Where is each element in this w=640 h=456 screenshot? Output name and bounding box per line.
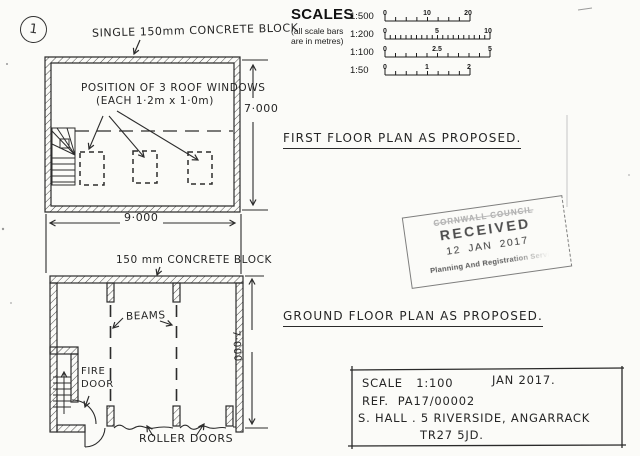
ground-floor-dimension-lines <box>245 276 268 428</box>
roof-window-1 <box>80 152 104 185</box>
first-floor-height-dimension: 7·000 <box>244 103 279 115</box>
title-block-address-line1: S. HALL . 5 RIVERSIDE, ANGARRACK <box>358 412 590 425</box>
scale-50-end: 2 <box>467 64 471 71</box>
beam-pier-top-1 <box>107 283 114 302</box>
scales-note-line2: are in metres) <box>291 36 343 46</box>
scale-500-mid: 10 <box>423 10 431 17</box>
scale-200-start: 0 <box>383 28 387 35</box>
beam-pier-bottom-2 <box>173 406 180 426</box>
first-floor-plan <box>45 40 268 274</box>
title-block-reference: REF. PA17/00002 <box>362 395 475 408</box>
beams-label: BEAMS <box>126 310 166 323</box>
ground-floor-walls <box>50 276 243 432</box>
scale-ratio-50: 1:50 <box>350 65 369 76</box>
fire-door-label-line2: DOOR <box>81 379 114 390</box>
roller-doors-label: ROLLER DOORS <box>139 433 233 445</box>
ground-floor-wall-label: 150 mm CONCRETE BLOCK <box>116 255 272 267</box>
sheet-number: 1 <box>28 21 38 37</box>
scale-50-start: 0 <box>383 64 387 71</box>
scale-ratio-200: 1:200 <box>350 29 374 40</box>
scale-100-mid: 2.5 <box>432 46 442 53</box>
wall-label-leader-arrow <box>134 40 140 54</box>
beam-pier-bottom-3 <box>226 406 233 426</box>
roof-windows-note-line2: (EACH 1·2m x 1·0m) <box>96 96 214 108</box>
scale-500-start: 0 <box>383 10 387 17</box>
scale-ratio-100: 1:100 <box>350 47 374 58</box>
fire-door-label-line1: FIRE <box>81 366 105 377</box>
beam-pier-bottom-1 <box>107 406 114 426</box>
scale-200-end: 10 <box>484 28 492 35</box>
title-block-address-line2: TR27 5JD. <box>420 429 484 442</box>
ground-floor-height-dimension: 7·000 <box>230 330 243 362</box>
scale-ratio-500: 1:500 <box>350 11 374 22</box>
roof-window-2 <box>133 151 157 183</box>
first-floor-stairs <box>52 128 75 185</box>
first-floor-plan-title: FIRST FLOOR PLAN AS PROPOSED. <box>283 132 521 149</box>
first-floor-width-dimension: 9·000 <box>124 212 159 224</box>
ground-floor-plan-title: GROUND FLOOR PLAN AS PROPOSED. <box>283 310 543 327</box>
scale-100-end: 5 <box>488 46 492 53</box>
scales-note-line1: (all scale bars <box>291 26 343 36</box>
scale-200-mid: 5 <box>435 28 439 35</box>
scale-50-mid: 1 <box>425 64 429 71</box>
stair-room-right-wall <box>71 354 78 402</box>
stair-room-top-wall <box>50 347 78 354</box>
roof-window-leader-arrows <box>89 111 198 160</box>
roof-window-3 <box>188 152 212 184</box>
scale-bars <box>385 14 490 75</box>
scales-heading: SCALES <box>291 6 354 23</box>
wall-label-leader-arrow-ground <box>157 267 160 275</box>
title-block-date: JAN 2017. <box>492 374 555 387</box>
scale-500-end: 20 <box>464 10 472 17</box>
scale-100-start: 0 <box>383 46 387 53</box>
roof-windows-note-line1: POSITION OF 3 ROOF WINDOWS <box>81 83 266 95</box>
fire-door-swing <box>72 400 96 424</box>
first-floor-walls <box>45 57 240 212</box>
drawing-sheet: 1 SINGLE 150mm CONCRETE BLOCK POSITION O… <box>0 0 640 456</box>
title-block-scale: SCALE 1:100 <box>362 377 453 390</box>
beam-pier-top-2 <box>173 283 180 302</box>
entrance-door-swing <box>85 427 105 447</box>
